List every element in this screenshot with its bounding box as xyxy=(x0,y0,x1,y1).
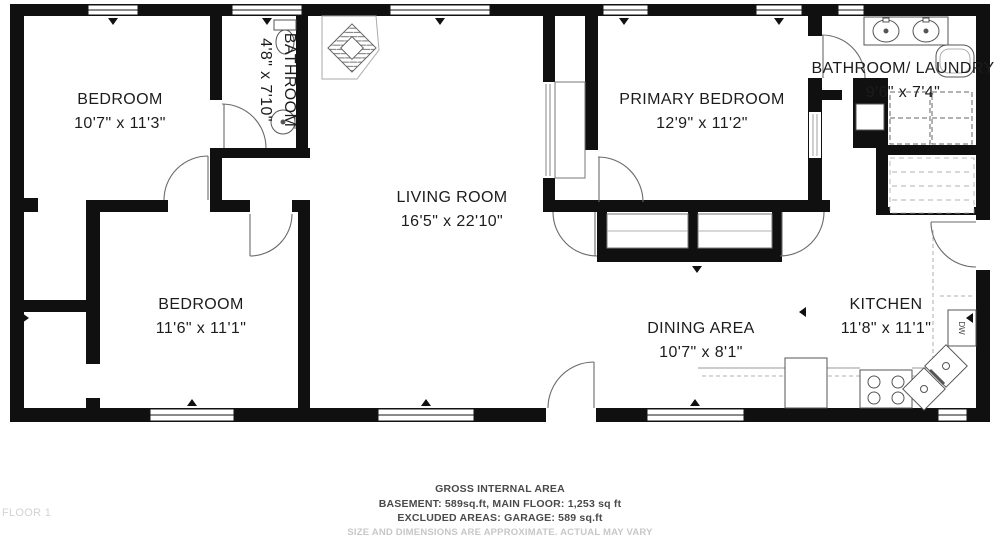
refrigerator-icon xyxy=(785,358,827,408)
dishwasher-label: DW xyxy=(957,321,966,335)
pantry-shelves xyxy=(890,158,974,213)
hall-closet xyxy=(607,214,688,248)
window xyxy=(938,409,967,421)
floor-plan-drawing: DW xyxy=(0,0,1000,470)
living-room-closet xyxy=(543,82,585,178)
door-arc-hall-right xyxy=(780,212,824,256)
bathtub-icon xyxy=(936,45,974,77)
washer-icon xyxy=(890,92,930,144)
door-leaf xyxy=(856,104,884,130)
window xyxy=(88,5,138,15)
area-summary-title: GROSS INTERNAL AREA xyxy=(0,482,1000,497)
double-vanity-icon xyxy=(864,17,948,45)
floor-plan: DW BEDROOM 10'7" x 11'3" BATHROOM 4'8" x… xyxy=(0,0,1000,535)
door-arc-primary-bedroom xyxy=(598,157,643,202)
walls xyxy=(10,4,990,422)
area-summary: GROSS INTERNAL AREA BASEMENT: 589sq.ft, … xyxy=(0,482,1000,535)
window xyxy=(150,409,234,421)
dryer-icon xyxy=(932,92,972,144)
toilet-icon xyxy=(274,20,296,54)
door-arc-kitchen-exterior xyxy=(931,222,976,267)
window xyxy=(603,5,648,15)
door-arc-bedroom-1 xyxy=(164,156,208,200)
door-arc-hall-left xyxy=(553,212,597,256)
door-arc-entry xyxy=(548,362,594,408)
door-arc-bathroom-laundry xyxy=(822,35,865,78)
window xyxy=(756,5,802,15)
window xyxy=(390,5,490,15)
area-summary-line2: EXCLUDED AREAS: GARAGE: 589 sq.ft xyxy=(0,511,1000,526)
floor-label: FLOOR 1 xyxy=(2,507,51,519)
area-summary-line1: BASEMENT: 589sq.ft, MAIN FLOOR: 1,253 sq… xyxy=(0,497,1000,512)
window xyxy=(232,5,302,15)
door-arc-bathroom xyxy=(222,104,266,148)
door-arc-bedroom-2 xyxy=(250,214,292,256)
window xyxy=(838,5,864,15)
window xyxy=(378,409,474,421)
bathroom-sink-icon xyxy=(271,110,295,134)
area-disclaimer: SIZE AND DIMENSIONS ARE APPROXIMATE, ACT… xyxy=(0,526,1000,535)
hall-closet xyxy=(698,214,772,248)
window xyxy=(647,409,744,421)
fireplace-icon xyxy=(322,16,379,79)
pocket-door xyxy=(809,112,821,158)
